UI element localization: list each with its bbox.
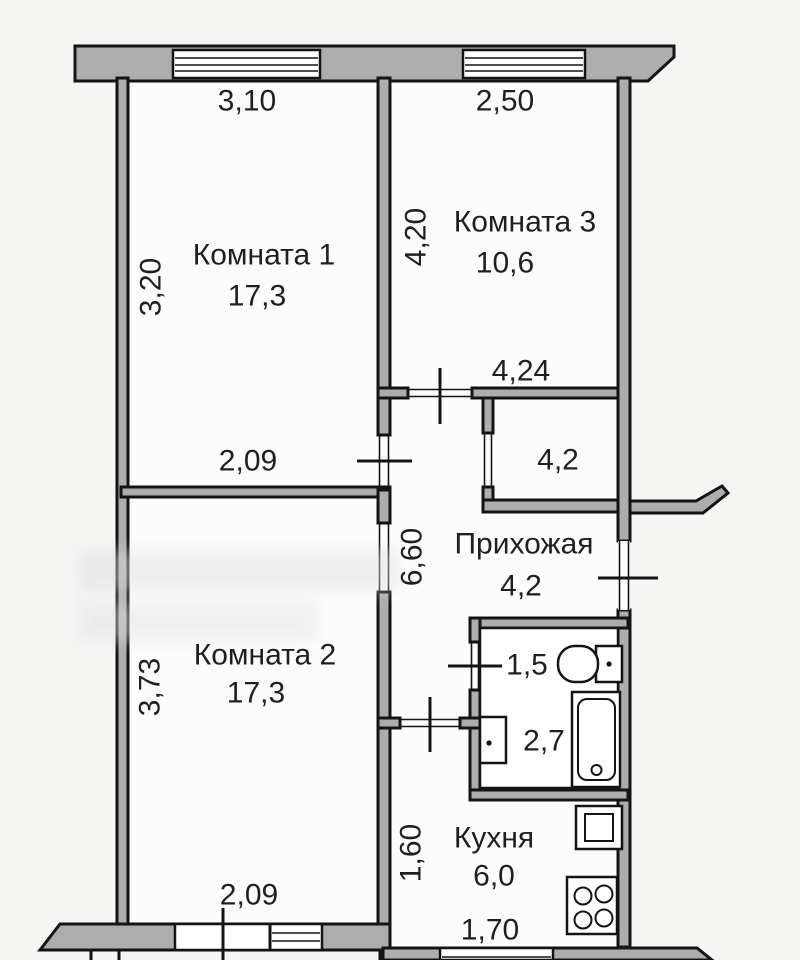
hallway-area: 4,2 (500, 570, 542, 603)
dim-room2-left: 3,73 (134, 658, 167, 716)
dim-hallway-left: 6,60 (396, 528, 429, 586)
hallway-label: Прихожая (454, 528, 593, 561)
dim-kitchen-left: 1,60 (395, 824, 428, 882)
dim-room3-bottom: 4,24 (492, 355, 550, 388)
room1-area: 17,3 (228, 280, 286, 313)
washbasin-fixture (480, 717, 506, 763)
floor-plan-page: 3,10 2,50 3,20 Комната 1 17,3 4,20 Комна… (0, 0, 800, 960)
wall-corridor (378, 78, 390, 947)
dim-room1-door: 2,09 (219, 445, 277, 478)
dim-room3-top: 2,50 (476, 85, 534, 118)
floor-plan: 3,10 2,50 3,20 Комната 1 17,3 4,20 Комна… (0, 0, 800, 960)
dim-kitchen-bottom: 1,70 (461, 914, 519, 947)
dim-room1-top: 3,10 (218, 85, 276, 118)
window-kitchen (440, 948, 553, 960)
stove-fixture (567, 877, 617, 934)
room2-label: Комната 2 (194, 639, 337, 672)
toilet-fixture (558, 646, 622, 682)
balcony-door-window (175, 924, 322, 950)
kitchen-sink-fixture (576, 806, 622, 849)
wc-area: 1,5 (506, 649, 548, 682)
room2-area: 17,3 (227, 677, 285, 710)
dim-room1-left: 3,20 (135, 258, 168, 316)
kitchen-label: Кухня (454, 822, 534, 855)
wall-room1-room2 (121, 487, 390, 497)
storage-area: 4,2 (537, 444, 579, 477)
room1-label: Комната 1 (193, 239, 336, 272)
dim-room2-bottom: 2,09 (220, 879, 278, 912)
bathroom-area: 2,7 (523, 725, 565, 758)
window-room1 (173, 50, 320, 78)
window-room3 (463, 50, 585, 78)
wall-storage-bottom (483, 500, 630, 512)
wall-left (117, 78, 128, 927)
kitchen-area: 6,0 (473, 860, 515, 893)
room3-label: Комната 3 (454, 206, 597, 239)
bathtub-fixture (572, 692, 620, 787)
room3-area: 10,6 (476, 247, 534, 280)
wall-san-top (470, 618, 628, 628)
dim-room3-left: 4,20 (400, 208, 433, 266)
wall-san-bottom (470, 790, 628, 800)
